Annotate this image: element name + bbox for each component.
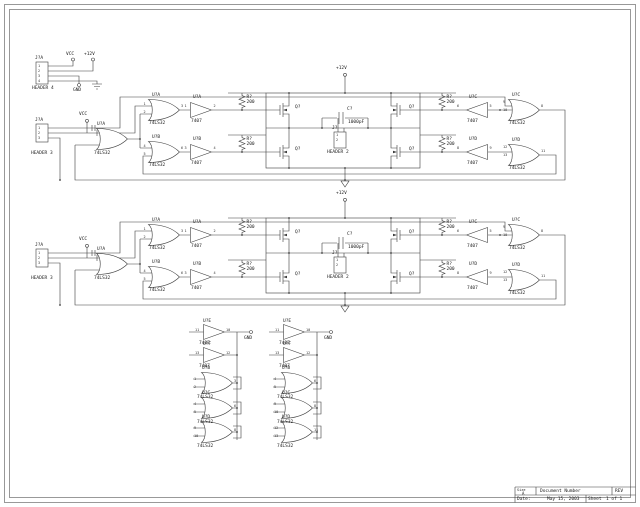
buffer-ref: U?E [283,319,291,324]
gate-pin: 5 [274,385,276,389]
mosfet-ref: Q? [295,230,300,235]
or-gate-ref: U?A [97,247,105,252]
connector-value: HEADER 4 [32,86,54,91]
resistor-ref: R? [247,220,252,225]
gate-pin: 6 [234,404,236,408]
gate-pin: 1 [194,377,196,381]
or-gate-ref: U?A [97,122,105,127]
gate-pin: 8 [314,404,316,408]
or-gate-ref: U?D [282,415,290,420]
buffer-ref: U?E [203,319,211,324]
gate-pin: 5 [490,104,492,108]
capacitor-ref: C? [347,107,352,112]
gate-pin: 10 [306,328,310,332]
connector-ref: J?A [35,243,43,248]
buffer-value: 7407 [467,119,478,124]
gate-pin: 12 [503,145,507,149]
gate-pin: 12 [226,351,230,355]
gate-pin: 3 [181,104,183,108]
gate-pin: 8 [457,271,459,275]
title-block-sheet-value: 1 of 1 [606,497,622,502]
gate-pin: 11 [541,274,545,278]
gate-pin: 3 [185,271,187,275]
or-gate-value: 74LS32 [277,444,293,449]
connector-pin: 1 [38,251,40,255]
or-gate-ref: U?D [512,138,520,143]
resistor-ref: R? [447,220,452,225]
gate-pin: 6 [314,379,316,383]
connector-value: HEADER 2 [327,150,349,155]
or-gate-ref: U?B [202,366,210,371]
buffer-value: 7407 [191,244,202,249]
gnd-power-label: GND [244,336,252,341]
gate-pin: 5 [144,277,146,281]
or-gate-value: 74LS32 [509,246,525,251]
gate-pin: 11 [314,428,318,432]
buffer-value: 7407 [467,161,478,166]
gate-pin: 8 [541,229,543,233]
resistor-ref: R? [247,95,252,100]
gate-pin: 5 [490,229,492,233]
circuit-block-middle [36,198,565,312]
gate-pin: 3 [181,229,183,233]
gate-pin: 9 [274,402,276,406]
mosfet-ref: Q? [409,147,414,152]
connector-ref: J?A [35,118,43,123]
resistor-value: 200 [447,142,455,147]
title-block-date-value: May 15, 2003 [547,497,580,502]
resistor-ref: R? [447,262,452,267]
or-gate-value: 74LS32 [277,420,293,425]
gnd-power-label: GND [324,336,332,341]
gate-pin: 1 [185,104,187,108]
connector-pin: 2 [38,256,40,260]
buffer-ref: U?B [193,262,201,267]
gate-pin: 8 [541,104,543,108]
gate-pin: 2 [194,385,196,389]
or-gate-ref: U?C [512,93,520,98]
gate-pin: 10 [274,410,278,414]
gate-pin: 3 [234,379,236,383]
gate-pin: 4 [274,377,276,381]
gate-pin: 13 [275,351,279,355]
connector-pin: 3 [38,74,40,78]
or-gate-ref: U?A [152,218,160,223]
gate-pin: 1 [144,102,146,106]
gate-pin: 13 [503,278,507,282]
p12v-power-label: +12V [336,191,347,196]
gate-pin: 6 [457,104,459,108]
or-gate-value: 74LS32 [197,420,213,425]
buffer-ref: U?B [193,137,201,142]
connector-ref: J?A [35,56,43,61]
buffer-ref: U?A [193,95,201,100]
gnd-power-label: GND [73,88,81,93]
schematic-canvas [0,0,640,507]
or-gate-value: 74LS32 [197,444,213,449]
capacitor-value: 1000pF [348,120,364,125]
gate-pin: 1 [185,229,187,233]
mosfet-ref: Q? [295,272,300,277]
or-gate-ref: U?A [152,93,160,98]
resistor-value: 200 [247,100,255,105]
gate-pin: 10 [503,108,507,112]
or-gate-value: 74LS32 [149,288,165,293]
or-gate-value: 74LS32 [94,276,110,281]
buffer-value: 7407 [191,119,202,124]
gate-pin: 2 [214,229,216,233]
or-gate-ref: U?B [282,366,290,371]
resistor-ref: R? [447,137,452,142]
gate-pin: 13 [195,351,199,355]
resistor-ref: R? [247,137,252,142]
vcc-power-label: VCC [79,112,87,117]
resistor-ref: R? [247,262,252,267]
buffer-ref: U?F [283,342,291,347]
or-gate-value: 74LS32 [149,246,165,251]
gate-pin: 8 [234,428,236,432]
connector-pin: 2 [38,131,40,135]
gate-pin: 6 [181,271,183,275]
gate-pin: 9 [194,426,196,430]
schematic-sheet: J?A HEADER 4 1 2 3 4 VCC +12V GND J?A HE… [0,0,640,507]
connector-pin: 1 [38,126,40,130]
connector-pin: 1 [38,64,40,68]
gate-pin: 12 [274,426,278,430]
gate-pin: 2 [214,104,216,108]
connector-pin: 1 [336,258,338,262]
or-gate-ref: U?C [282,391,290,396]
capacitor-ref: C? [347,232,352,237]
vcc-power-label: VCC [79,237,87,242]
connector-pin: 1 [336,133,338,137]
buffer-ref: U?F [203,342,211,347]
gate-pin: 13 [274,434,278,438]
power-connector-symbol [36,58,102,89]
resistor-value: 200 [447,267,455,272]
buffer-ref: U?A [193,220,201,225]
or-gate-ref: U?B [152,260,160,265]
or-gate-ref: U?D [202,415,210,420]
buffer-value: 7407 [467,286,478,291]
gate-pin: 11 [541,149,545,153]
resistor-value: 200 [447,100,455,105]
connector-ref: J? [332,126,337,131]
buffer-value: 7407 [467,244,478,249]
gate-pin: 9 [490,146,492,150]
mosfet-ref: Q? [295,147,300,152]
mosfet-ref: Q? [409,230,414,235]
gate-pin: 11 [195,328,199,332]
gate-pin: 6 [457,229,459,233]
or-gate-ref: U?C [512,218,520,223]
connector-pin: 3 [38,136,40,140]
or-gate-value: 74LS32 [509,291,525,296]
gate-pin: 10 [226,328,230,332]
gate-pin: 9 [490,271,492,275]
gate-pin: 6 [181,146,183,150]
title-block-sheet-label: Sheet [588,497,602,502]
connector-pin: 4 [38,79,40,83]
mosfet-ref: Q? [409,272,414,277]
or-gate-ref: U?C [202,391,210,396]
gate-pin: 12 [503,270,507,274]
connector-pin: 3 [38,261,40,265]
or-gate-value: 74LS32 [509,121,525,126]
vcc-power-label: VCC [66,52,74,57]
buffer-ref: U?D [469,262,477,267]
connector-ref: J? [332,251,337,256]
gate-pin: 5 [194,410,196,414]
or-gate-value: 74LS32 [509,166,525,171]
gate-pin: 10 [503,233,507,237]
capacitor-value: 1000pF [348,245,364,250]
title-block-doc-label: Document Number [540,489,581,494]
connector-value: HEADER 3 [31,276,53,281]
or-gate-value: 74LS32 [149,163,165,168]
title-block-date-label: Date: [517,497,531,502]
connector-value: HEADER 2 [327,275,349,280]
buffer-ref: U?C [469,220,477,225]
resistor-ref: R? [447,95,452,100]
buffer-ref: U?D [469,137,477,142]
gate-pin: 12 [306,351,310,355]
gate-pin: 8 [457,146,459,150]
gate-pin: 4 [144,269,146,273]
resistor-value: 200 [247,142,255,147]
gate-pin: 1 [144,227,146,231]
gate-pin: 9 [503,100,505,104]
gate-pin: 2 [144,235,146,239]
gate-pin: 5 [144,152,146,156]
gate-pin: 11 [275,328,279,332]
mosfet-ref: Q? [295,105,300,110]
connector-pin: 2 [336,263,338,267]
buffer-ref: U?C [469,95,477,100]
mosfet-ref: Q? [409,105,414,110]
gate-pin: 10 [194,434,198,438]
buffer-value: 7407 [191,286,202,291]
gate-pin: 13 [503,153,507,157]
resistor-value: 200 [447,225,455,230]
gate-pin: 4 [194,402,196,406]
gate-pin: 2 [144,110,146,114]
resistor-value: 200 [247,225,255,230]
gate-pin: 4 [214,146,216,150]
or-gate-ref: U?D [512,263,520,268]
title-block-rev-label: REV [615,489,623,494]
gate-pin: 9 [503,225,505,229]
p12v-power-label: +12V [84,52,95,57]
connector-value: HEADER 3 [31,151,53,156]
gate-pin: 4 [144,144,146,148]
circuit-block-top [36,73,565,187]
gate-pin: 3 [185,146,187,150]
or-gate-value: 74LS32 [94,151,110,156]
gate-pin: 4 [214,271,216,275]
or-gate-ref: U?B [152,135,160,140]
resistor-value: 200 [247,267,255,272]
connector-pin: 2 [336,138,338,142]
p12v-power-label: +12V [336,66,347,71]
connector-pin: 2 [38,69,40,73]
or-gate-value: 74LS32 [149,121,165,126]
buffer-value: 7407 [191,161,202,166]
